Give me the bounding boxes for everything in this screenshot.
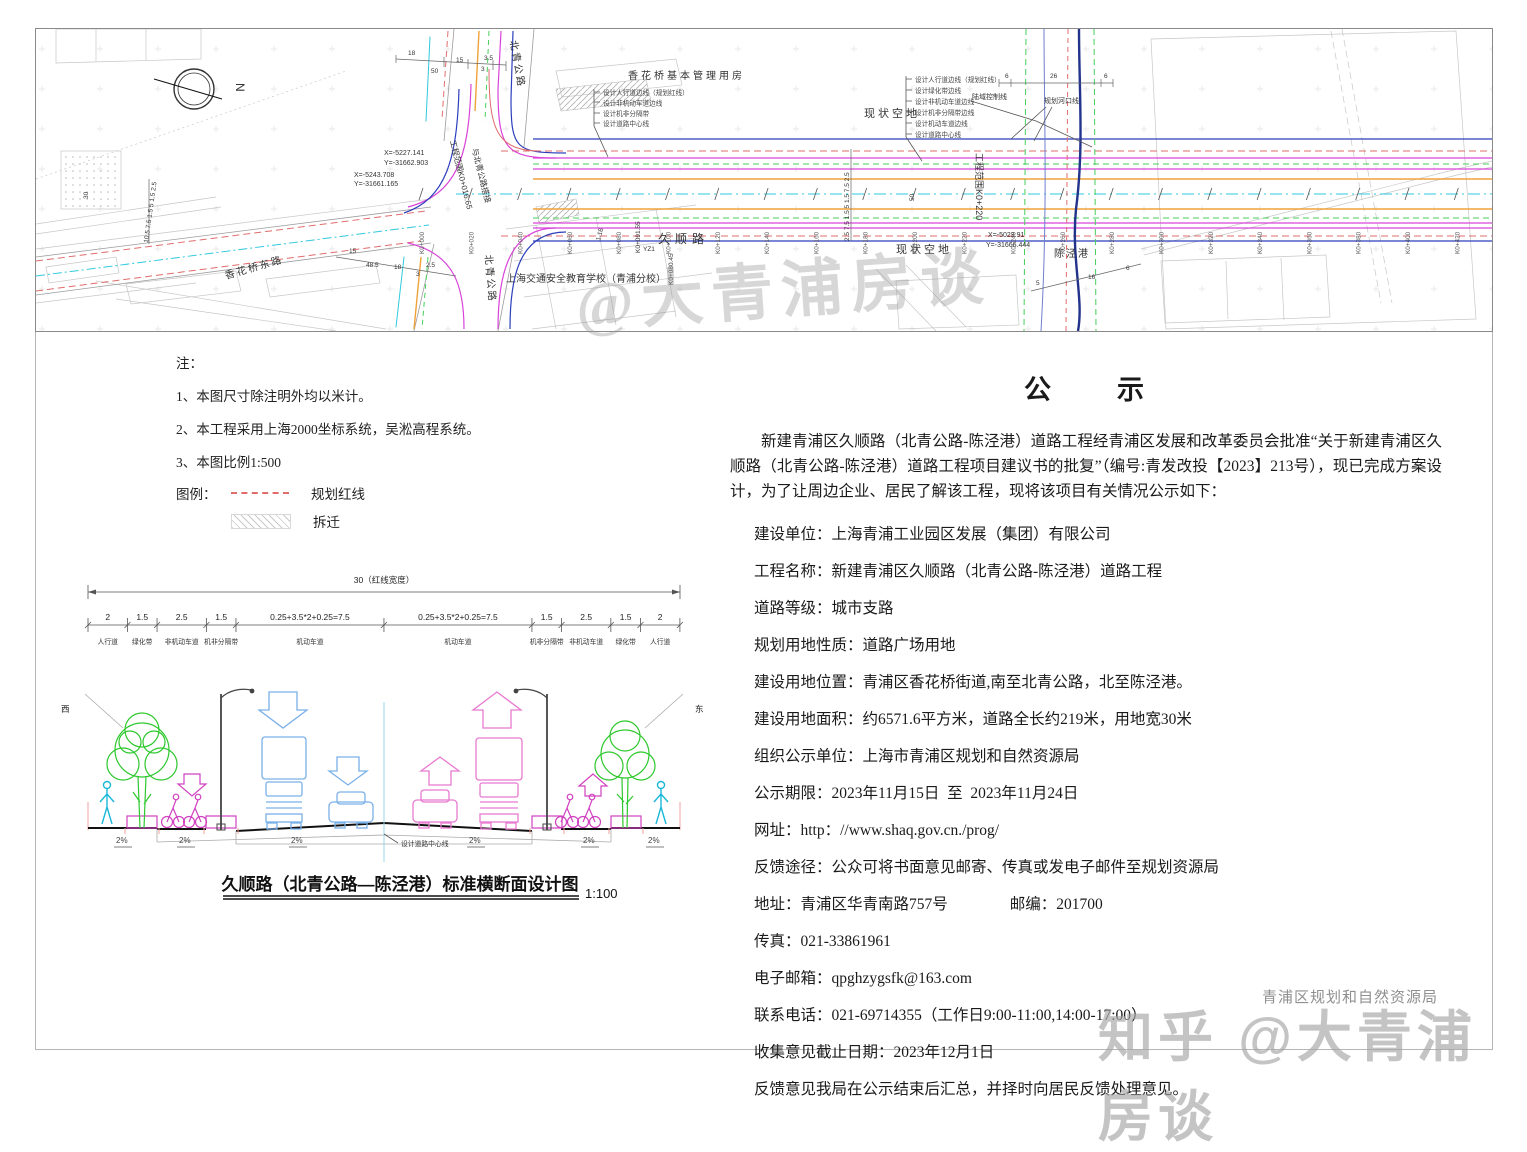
plan-map-panel: 18 50 15 3.5 3 15 48.5 18 3 2.5 6 26 6 5… xyxy=(35,28,1493,332)
station-label: K0+180 xyxy=(863,231,870,254)
dim-r6b: 6 xyxy=(1104,73,1108,80)
xs-centerline-label: 设计道路中心线 xyxy=(401,839,449,848)
dim-rb16: 16 xyxy=(1088,274,1096,281)
dim-stack-mid: 2.5 7.5 1.5 5 1.5 7.5 2.5 xyxy=(844,172,851,241)
xs-slope-label: 2% xyxy=(179,836,191,845)
notice-item: 道路等级：城市支路 xyxy=(754,598,1442,619)
station-label: K0+160 xyxy=(813,231,820,254)
xs-dim-value: 1.5 xyxy=(541,612,553,622)
legend-row-demolish: 拆迁 xyxy=(176,511,606,531)
note-line: 3、本图比例1:500 xyxy=(176,451,606,471)
dim-top1: 18 xyxy=(408,50,416,57)
legend-redline-label: 规划红线 xyxy=(311,483,365,503)
coord-3x: X=-5023.91 xyxy=(988,232,1024,239)
dim-bot5: 2.5 xyxy=(426,262,435,269)
notice-item: 组织公示单位：上海市青浦区规划和自然资源局 xyxy=(754,746,1442,767)
xs-dim-value: 2.5 xyxy=(176,612,188,622)
station-label: K0+380 xyxy=(1356,231,1363,254)
station-label: K0+000 xyxy=(419,231,426,254)
dim-r26: 26 xyxy=(1050,73,1058,80)
callout-label: 设计机非分隔带 xyxy=(603,109,650,118)
label-river-line: 规划河口线 xyxy=(1044,96,1079,105)
xs-segment-label: 机非分隔带 xyxy=(204,637,238,646)
notice-item: 电子邮箱：qpghzygsfk@163.com xyxy=(754,968,1442,989)
xs-segment-label: 非机动车道 xyxy=(165,637,199,646)
xs-dim-value: 2 xyxy=(105,612,110,622)
xs-segment-label: 非机动车道 xyxy=(569,637,603,646)
dim-w30: 30 xyxy=(83,191,90,199)
callout-label: 设计人行道边线（规划红线） xyxy=(603,88,689,97)
xs-dim-value: 1.5 xyxy=(620,612,632,622)
dim-top3: 15 xyxy=(456,57,464,64)
station-label: K0+080 xyxy=(616,231,623,254)
label-vacant-1: 现状空地 xyxy=(864,106,920,120)
car-magenta xyxy=(413,790,457,828)
notice-items-list: 建设单位：上海青浦工业园区发展（集团）有限公司工程名称：新建青浦区久顺路（北青公… xyxy=(730,524,1442,1100)
truck-blue xyxy=(262,737,306,829)
notice-item: 网址：http：//www.shaq.gov.cn./prog/ xyxy=(754,820,1442,841)
xs-dim-value: 0.25+3.5*2+0.25=7.5 xyxy=(418,612,498,622)
legend-row-redline: 图例： 规划红线 xyxy=(176,483,606,503)
note-line: 1、本图尺寸除注明外均以米计。 xyxy=(176,385,606,405)
callout-label: 设计非机动车道边线 xyxy=(915,97,975,106)
plan-map-svg: 18 50 15 3.5 3 15 48.5 18 3 2.5 6 26 6 5… xyxy=(36,29,1492,331)
station-09155: K0+091.55 xyxy=(635,221,642,253)
callout-label: 设计绿化带边线 xyxy=(915,86,962,95)
station-label: K0+420 xyxy=(1454,231,1461,254)
callout-label: 设计道路中心线 xyxy=(603,119,650,128)
notice-item: 建设用地位置：青浦区香花桥街道,南至北青公路，北至陈泾港。 xyxy=(754,672,1442,693)
station-label: K0+340 xyxy=(1257,231,1264,254)
station-label: K0+120 xyxy=(715,231,722,254)
label-land-control: 陆域控制线 xyxy=(972,92,1007,101)
notice-item: 传真：021-33861961 xyxy=(754,931,1442,952)
notes-heading: 注： xyxy=(176,352,606,372)
station-label: K0+240 xyxy=(1011,231,1018,254)
notice-item: 地址：青浦区华青南路757号 邮编：201700 xyxy=(754,894,1442,915)
xs-segment-label: 人行道 xyxy=(98,637,119,646)
notice-item: 联系电话：021-69714355（工作日9:00-11:00,14:00-17… xyxy=(754,1005,1442,1026)
xs-title: 久顺路（北青公路—陈泾港）标准横断面设计图 xyxy=(222,874,579,894)
coord-1x: X=-5227.141 xyxy=(384,150,424,157)
callout-label: 设计机动车道边线 xyxy=(915,119,968,128)
xs-total-label: 30（红线宽度） xyxy=(354,575,414,585)
notice-item: 规划用地性质：道路广场用地 xyxy=(754,635,1442,656)
tree-left xyxy=(107,713,177,828)
demolish-swatch xyxy=(231,514,291,529)
notice-item: 建设用地面积：约6571.6平方米，道路全长约219米，用地宽30米 xyxy=(754,709,1442,730)
pedestrian-left xyxy=(100,782,114,825)
notes-block: 注： 1、本图尺寸除注明外均以米计。2、本工程采用上海2000坐标系统，吴淞高程… xyxy=(176,352,606,531)
callout-label: 设计道路中心线 xyxy=(915,130,962,139)
station-label: K0+140 xyxy=(764,231,771,254)
station-label: K0+200 xyxy=(912,231,919,254)
truck-magenta xyxy=(476,738,522,829)
xs-segment-label: 绿化带 xyxy=(615,637,636,646)
legend-heading: 图例： xyxy=(176,483,231,503)
station-label: K0+020 xyxy=(468,231,475,254)
xs-title-underline xyxy=(223,896,579,899)
cross-section-panel: 30（红线宽度） 2人行道1.5绿化带2.5非机动车道1.5机非分隔带0.25+… xyxy=(55,552,715,912)
dim-bot2: 48.5 xyxy=(366,262,379,269)
coord-1y: Y=-31662.903 xyxy=(384,160,428,167)
notice-item: 反馈意见我局在公示结束后汇总，并择时向居民反馈处理意见。 xyxy=(754,1079,1442,1100)
xs-slope-label: 2% xyxy=(648,836,660,845)
xs-east-label: 东 xyxy=(695,704,704,714)
dim-rb5: 5 xyxy=(1036,280,1040,287)
dim-r6a: 6 xyxy=(1005,73,1009,80)
xs-slope-label: 2% xyxy=(116,836,128,845)
xs-segment-dims: 2人行道1.5绿化带2.5非机动车道1.5机非分隔带0.25+3.5*2+0.2… xyxy=(85,612,683,646)
direction-arrows xyxy=(178,692,607,796)
xs-slope-label: 2% xyxy=(583,836,595,845)
station-label: K0+320 xyxy=(1208,231,1215,254)
xs-segment-label: 人行道 xyxy=(650,637,671,646)
label-vacant-2: 现状空地 xyxy=(896,242,952,256)
xs-slope-label: 2% xyxy=(469,836,481,845)
dim-bot1: 15 xyxy=(349,248,357,255)
station-label: K0+260 xyxy=(1060,231,1067,254)
label-yz1: YZ1 xyxy=(643,246,655,253)
dim-bot4: 3 xyxy=(416,271,420,278)
callout-label: 设计人行道边线（规划红线） xyxy=(915,75,1001,84)
notice-intro: 新建青浦区久顺路（北青公路-陈泾港）道路工程经青浦区发展和改革委员会批准“关于新… xyxy=(730,429,1442,504)
tree-right xyxy=(595,721,655,828)
pedestrian-right xyxy=(654,782,668,825)
street-lamp-left xyxy=(217,689,254,830)
notice-item: 反馈途径：公众可将书面意见邮寄、传真或发电子邮件至规划资源局 xyxy=(754,857,1442,878)
xs-west-label: 西 xyxy=(61,704,70,714)
label-building-top: 香花桥基本管理用房 xyxy=(628,69,745,82)
notice-item: 建设单位：上海青浦工业园区发展（集团）有限公司 xyxy=(754,524,1442,545)
north-letter: N xyxy=(233,83,247,92)
redline-swatch xyxy=(231,492,289,494)
car-blue xyxy=(329,792,373,828)
notice-item: 公示期限：2023年11月15日 至 2023年11月24日 xyxy=(754,783,1442,804)
notes-list: 1、本图尺寸除注明外均以米计。2、本工程采用上海2000坐标系统，吴淞高程系统。… xyxy=(176,385,606,471)
coord-2x: X=-5243.708 xyxy=(354,172,394,179)
dim-w50: 50 xyxy=(909,193,916,201)
dim-bot3: 18 xyxy=(394,264,402,271)
xs-dim-value: 1.5 xyxy=(136,612,148,622)
xs-segment-label: 绿化带 xyxy=(132,637,153,646)
callout-label: 设计机非分隔带边线 xyxy=(915,108,975,117)
legend-demolish-label: 拆迁 xyxy=(313,511,340,531)
notice-item: 收集意见截止日期：2023年12月1日 xyxy=(754,1042,1442,1063)
callout-label: 设计非机动车道边线 xyxy=(603,98,663,107)
station-label: K0+220 xyxy=(961,231,968,254)
dim-top2: 50 xyxy=(431,68,439,75)
station-label: K0+060 xyxy=(567,231,574,254)
notice-item: 工程名称：新建青浦区久顺路（北青公路-陈泾港）道路工程 xyxy=(754,561,1442,582)
cyclists-left xyxy=(162,794,207,827)
label-school: 上海交通安全教育学校（青浦分校） xyxy=(506,272,666,285)
station-label: K0+280 xyxy=(1109,231,1116,254)
xs-dim-value: 0.25+3.5*2+0.25=7.5 xyxy=(270,612,350,622)
xs-dim-value: 2.5 xyxy=(580,612,592,622)
xs-scale: 1:100 xyxy=(585,886,618,901)
cross-section-svg: 30（红线宽度） 2人行道1.5绿化带2.5非机动车道1.5机非分隔带0.25+… xyxy=(55,552,715,912)
xs-segment-label: 机动车道 xyxy=(296,637,323,646)
label-scope-end: 工程范围K0+220 xyxy=(974,153,985,220)
coord-2y: Y=-31661.165 xyxy=(354,181,398,188)
dim-top4: 3.5 xyxy=(484,55,493,62)
map-texture xyxy=(36,29,1492,331)
station-label: K0+400 xyxy=(1405,231,1412,254)
coord-3y: Y=-31666.444 xyxy=(986,242,1030,249)
xs-segment-label: 机动车道 xyxy=(444,637,471,646)
dim-rb6: 6 xyxy=(1126,265,1130,272)
public-notice: 公 示 新建青浦区久顺路（北青公路-陈泾港）道路工程经青浦区发展和改革委员会批准… xyxy=(730,368,1442,1116)
xs-dim-value: 1.5 xyxy=(215,612,227,622)
station-08045: K0+080.45 xyxy=(668,253,675,285)
dim-top5: 3 xyxy=(481,66,485,73)
station-label: K0+300 xyxy=(1159,231,1166,254)
station-label: K0+040 xyxy=(518,231,525,254)
notice-title: 公 示 xyxy=(730,368,1442,407)
xs-segment-label: 机非分隔带 xyxy=(530,637,564,646)
xs-dim-value: 2 xyxy=(658,612,663,622)
xs-total-dim: 30（红线宽度） xyxy=(88,575,680,599)
station-label: K0+100 xyxy=(666,231,673,254)
xs-slope-label: 2% xyxy=(291,836,303,845)
note-line: 2、本工程采用上海2000坐标系统，吴淞高程系统。 xyxy=(176,418,606,438)
station-label: K0+360 xyxy=(1306,231,1313,254)
